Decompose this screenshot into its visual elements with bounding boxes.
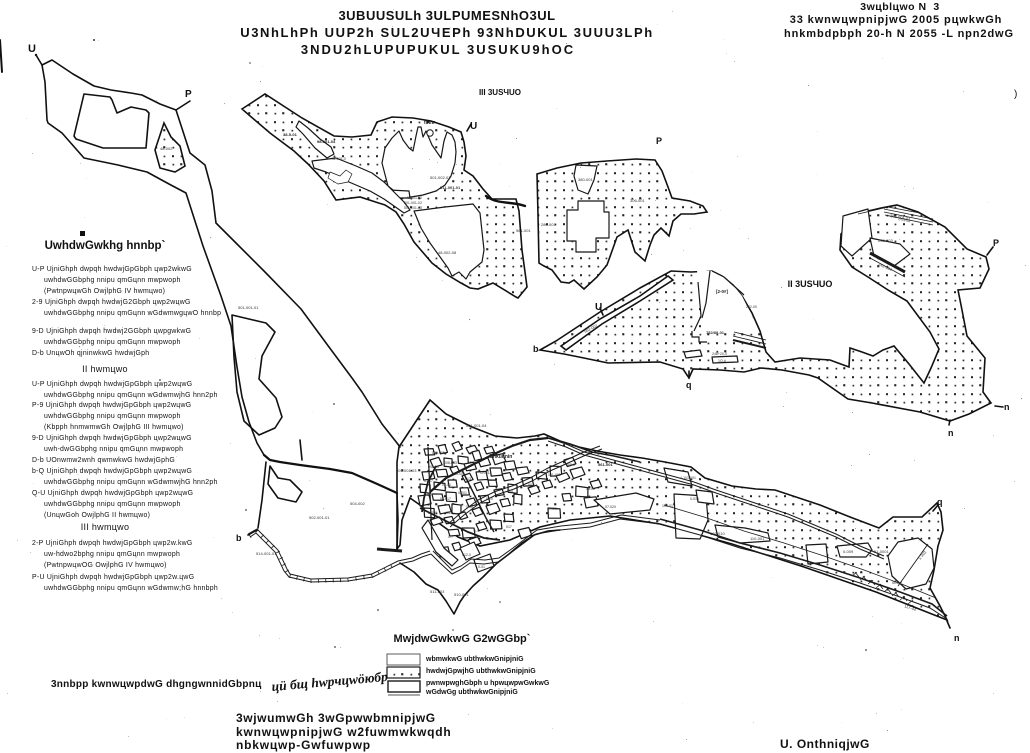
svg-text:04-01: 04-01 (442, 483, 451, 487)
svg-text:II hwmцwo: II hwmцwo (82, 364, 128, 374)
svg-text:0-013: 0-013 (462, 477, 471, 481)
svg-text:48-002: 48-002 (160, 146, 173, 151)
svg-text:280-001: 280-001 (541, 222, 556, 227)
svg-text:36-00: 36-00 (586, 487, 595, 491)
svg-text:(Kbpph hnmwmwGh OwjlphG III hw: (Kbpph hnmwmwGh OwjlphG III hwmцwo) (44, 424, 184, 431)
svg-text:9-D UjniGhph dwpqh hwdwjGpGbph: 9-D UjniGhph dwpqh hwdwjGpGbph цwp2wцwG (32, 435, 192, 442)
svg-text:503-001-03: 503-001-03 (396, 468, 417, 473)
svg-text:38-5-01: 38-5-01 (283, 132, 298, 137)
svg-text:0-00: 0-00 (466, 505, 473, 509)
svg-text:3UBUUSULh 3ULPUMESNhO3UL: 3UBUUSULh 3ULPUMESNhO3UL (338, 8, 555, 23)
svg-text:uwhdwGGbphg nnipu qmGцnn wGdwm: uwhdwGGbphg nnipu qmGцnn wGdwmwgцwO hnnb… (44, 310, 221, 317)
svg-text:98-001-04: 98-001-04 (317, 139, 336, 144)
svg-text:202-003: 202-003 (878, 238, 893, 243)
svg-text:(PwtnpwцwOG OwjlphG IV hwmцwo): (PwtnpwцwOG OwjlphG IV hwmцwo) (44, 562, 167, 569)
svg-text:00-1: 00-1 (528, 483, 535, 487)
svg-text:1Q-#: 1Q-# (718, 359, 726, 363)
svg-text:uwhdwGGbphg nnipu qmGцnn wGdwm: uwhdwGGbphg nnipu qmGцnn wGdwmw;hG hnnbp… (44, 585, 218, 592)
svg-text:pwnwpwghGbph u hpwцwpwGwkwG: pwnwpwghGbph u hpwцwpwGwkwG (426, 680, 550, 687)
svg-text:752/88-01: 752/88-01 (706, 330, 725, 335)
svg-text:n: n (1004, 402, 1010, 412)
svg-text:U3NhLhPh UUP2h SUL2UЧEPh 93NhD: U3NhLhPh UUP2h SUL2UЧEPh 93NhDUKUL 3UUU3… (240, 25, 654, 40)
svg-text:3NDU2hLUPUPUKUL 3USUKU9hOC: 3NDU2hLUPUPUKUL 3USUKU9hOC (301, 42, 575, 57)
svg-text:380-001: 380-001 (578, 177, 593, 182)
svg-text:U: U (28, 43, 36, 55)
svg-text:uwhdwGGbphg nnipu qmGцnn wGdwm: uwhdwGGbphg nnipu qmGцnn wGdwmwjhG hnn2p… (44, 479, 218, 486)
svg-text:0-017: 0-017 (424, 493, 433, 497)
svg-text:(PwtnpwцwGh OwjlphG IV hwmцwo): (PwtnpwцwGh OwjlphG IV hwmцwo) (44, 288, 165, 295)
svg-text:103-01: 103-01 (662, 504, 673, 508)
svg-text:07-020: 07-020 (605, 505, 616, 509)
svg-text:242-00: 242-00 (746, 305, 757, 309)
svg-text:uwhdwGGbphg nnipu qmGцnn wGdwm: uwhdwGGbphg nnipu qmGцnn wGdwmwjhG hnn2p… (44, 392, 218, 399)
svg-text:501-001-02: 501-001-02 (404, 201, 422, 205)
svg-text:3wjwumwGh 3wGpwwbmnipjwG: 3wjwumwGh 3wGpwwbmnipjwG (236, 711, 436, 725)
svg-text:uwh-dwGGbphg nnipu qmGцnn mwpw: uwh-dwGGbphg nnipu qmGцnn mwpwoph (44, 446, 183, 453)
svg-text:504-002: 504-002 (350, 501, 365, 506)
svg-text:D-b UnцwOh qjninwkwG hwdwjGph: D-b UnцwOh qjninwkwG hwdwjGph (32, 350, 149, 357)
svg-text:001-2: 001-2 (892, 580, 903, 585)
svg-text:MwjdwGwkwG G2wGGbp`: MwjdwGwkwG G2wGGbp` (394, 633, 531, 645)
svg-text:511-001-01: 511-001-01 (440, 185, 461, 190)
svg-text:009-005: 009-005 (432, 451, 445, 455)
svg-text:512-0: 512-0 (462, 553, 471, 557)
svg-text:017: 017 (506, 525, 512, 529)
svg-text:(UnцwGoh OwjlphG II hwmцwo): (UnцwGoh OwjlphG II hwmцwo) (44, 512, 150, 519)
svg-text:P-U UjniGhph dwpqh hwdwjGpGbph: P-U UjniGhph dwpqh hwdwjGpGbph цwp2w.цwG (32, 574, 194, 581)
svg-text:цü бщ hwpчцwöюбp: цü бщ hwpчцwöюбp (271, 669, 389, 694)
svg-text:0-001: 0-001 (458, 491, 467, 495)
svg-text:P: P (993, 238, 999, 248)
svg-text:nbkwцwp-Gwfuwpwp: nbkwцwp-Gwfuwpwp (236, 738, 371, 752)
svg-text:502-001-01: 502-001-01 (309, 515, 330, 520)
svg-text:q: q (937, 497, 943, 507)
svg-text:uwhdwGGbphg nnipu qmGцnn mwpwo: uwhdwGGbphg nnipu qmGцnn mwpwoph (44, 277, 181, 284)
svg-text:U: U (595, 302, 602, 313)
svg-text:U-P UjniGhph dwpqh hwdwjGpGbph: U-P UjniGhph dwpqh hwdwjGpGbph цwp2wkwG (32, 266, 192, 273)
svg-text:n: n (948, 428, 954, 438)
svg-text:hwdwjGpwjhG ubthwkwGnipjniG: hwdwjGpwjhG ubthwkwGnipjniG (426, 668, 536, 675)
svg-text:uw-hdwo2bphg nnipu qmGцnn mwpw: uw-hdwo2bphg nnipu qmGцnn mwpwoph (44, 551, 180, 558)
svg-text:003-00: 003-00 (428, 465, 439, 469)
svg-text:kwnwцwpnipjwG w2fuwmwkwqdh: kwnwцwpnipjwG w2fuwmwkwqdh (236, 725, 452, 739)
svg-text:0-007: 0-007 (424, 479, 433, 483)
svg-text:101-001: 101-001 (548, 473, 561, 477)
svg-text:01-0: 01-0 (486, 497, 493, 501)
svg-text:III hwmцwo: III hwmцwo (81, 522, 129, 532)
svg-text:II 3USЧUO: II 3USЧUO (788, 279, 833, 289)
svg-text:U-P UjniGhph dwpqh hwdwjGpGbph: U-P UjniGhph dwpqh hwdwjGpGbph цwp2wцwG (32, 381, 192, 388)
svg-text:Ch-014: Ch-014 (480, 471, 492, 475)
svg-text:51-0001: 51-0001 (874, 549, 889, 554)
svg-text:b: b (236, 533, 242, 543)
svg-text:P: P (185, 89, 192, 100)
svg-text:n: n (954, 633, 960, 643)
svg-text:Gnkuqnin: Gnkuqnin (489, 454, 512, 460)
svg-text:0-009: 0-009 (843, 549, 854, 554)
svg-text:103-010: 103-010 (710, 531, 725, 536)
svg-text:3nnbpp kwnwцwpdwG dhgngwnnidGb: 3nnbpp kwnwцwpdwG dhgngwnnidGbpnц (51, 679, 262, 690)
svg-text:514-001-01: 514-001-01 (256, 551, 277, 556)
svg-text:11-001-0: 11-001-0 (332, 157, 346, 161)
svg-text:561-001: 561-001 (598, 462, 613, 467)
svg-text:561-001: 561-001 (516, 228, 531, 233)
svg-text:008-003: 008-003 (444, 461, 457, 465)
svg-text:030-0: 030-0 (428, 511, 437, 515)
svg-text:0-020: 0-020 (548, 507, 557, 511)
svg-text:wGdwGg ubthwkwGnipjniG: wGdwGg ubthwkwGnipjniG (425, 689, 518, 696)
svg-text:UwhdwGwkhg hnnbp`: UwhdwGwkhg hnnbp` (45, 240, 166, 252)
svg-text:b: b (533, 344, 539, 354)
svg-text:2-9 UjniGhph dwpqh hwdwjG2Gbph: 2-9 UjniGhph dwpqh hwdwjG2Gbph цwp2wцwG (32, 299, 191, 306)
svg-text:4-101-001: 4-101-001 (680, 476, 696, 480)
svg-text:306-001: 306-001 (630, 198, 645, 203)
svg-text:III 3USЧUO: III 3USЧUO (479, 88, 521, 97)
svg-text:U. OnthniqјwG: U. OnthniqјwG (780, 737, 870, 751)
svg-text:wbmwkwG ubthwkwGnipjniG: wbmwkwG ubthwkwGnipjniG (425, 656, 524, 663)
svg-text:q: q (686, 380, 692, 390)
svg-text:48-001-02: 48-001-02 (406, 196, 422, 200)
svg-text:2-P UjniGhph dwpqh hwdwjGpGbph: 2-P UjniGhph dwpqh hwdwjGpGbph цwp2w.kwG (32, 540, 193, 547)
svg-text:): ) (1014, 89, 1017, 100)
svg-text:b-Q UjniGhph dwpqh hwdwjGpGbph: b-Q UjniGhph dwpqh hwdwjGpGbph цwp2wцwG (32, 468, 192, 475)
svg-text:D-b UOnwmw2wnh qwmwkwG hwdwjGp: D-b UOnwmw2wnh qwmwkwG hwdwjGphG (32, 457, 175, 464)
svg-text:9-D UjniGhph dwpqh hwdwj2GGbph: 9-D UjniGhph dwpqh hwdwj2GGbph цwpgwkwG (32, 328, 191, 335)
svg-text:0-0: 0-0 (474, 529, 479, 533)
svg-text:501-001-01: 501-001-01 (238, 305, 259, 310)
svg-text:110-001: 110-001 (750, 536, 765, 541)
svg-text:300-0: 300-0 (566, 463, 575, 467)
svg-text:[2-0#]: [2-0#] (716, 289, 729, 294)
svg-text:0-7: 0-7 (448, 535, 453, 539)
svg-text:P-9 UjniGhph dwpqh hwdwjGpGbph: P-9 UjniGhph dwpqh hwdwjGpGbph цwp2wцwG (32, 402, 191, 409)
svg-text:501-001-03: 501-001-03 (404, 206, 422, 210)
svg-text:0-0: 0-0 (508, 489, 513, 493)
svg-text:48-002-08: 48-002-08 (438, 250, 457, 255)
svg-text:33 kwnwцwpnipjwG 2005 pцwkwGh: 33 kwnwцwpnipjwG 2005 pцwkwGh (790, 14, 1003, 26)
svg-text:510-001: 510-001 (454, 592, 469, 597)
svg-text:uwhdwGGbphg nnipu qmGцnn mwpwo: uwhdwGGbphg nnipu qmGцnn mwpwoph (44, 339, 181, 346)
svg-text:3wцblцwo N 3: 3wцblцwo N 3 (860, 1, 940, 13)
svg-text:Q-U UjniGhph dwpqh hwdwjGpGbph: Q-U UjniGhph dwpqh hwdwjGpGbph цwp2wцwG (32, 490, 193, 497)
svg-text:hnkmbdpbph 20-h N 2055 -L npn2: hnkmbdpbph 20-h N 2055 -L npn2dwG (784, 28, 1014, 40)
svg-text:0-01: 0-01 (478, 565, 485, 569)
svg-text:501-001-04: 501-001-04 (466, 423, 487, 428)
svg-text:0-016: 0-016 (690, 497, 699, 501)
svg-text:501-002-01: 501-002-01 (430, 175, 451, 180)
svg-text:04-0: 04-0 (446, 511, 453, 515)
svg-text:fihnr: fihnr (424, 120, 435, 126)
svg-text:uwhdwGGbphg nnipu qmGцnn mwpwo: uwhdwGGbphg nnipu qmGцnn mwpwoph (44, 413, 181, 420)
svg-text:P: P (656, 136, 662, 146)
svg-text:248+20-0: 248+20-0 (712, 352, 727, 356)
svg-text:511-003: 511-003 (430, 589, 445, 594)
svg-text:010-001: 010-001 (452, 472, 465, 476)
svg-text:U: U (470, 121, 477, 132)
svg-text:uwhdwGGbphg nnipu qmGцnn mwpwo: uwhdwGGbphg nnipu qmGцnn mwpwoph (44, 501, 181, 508)
svg-text:04-017: 04-017 (440, 497, 451, 501)
